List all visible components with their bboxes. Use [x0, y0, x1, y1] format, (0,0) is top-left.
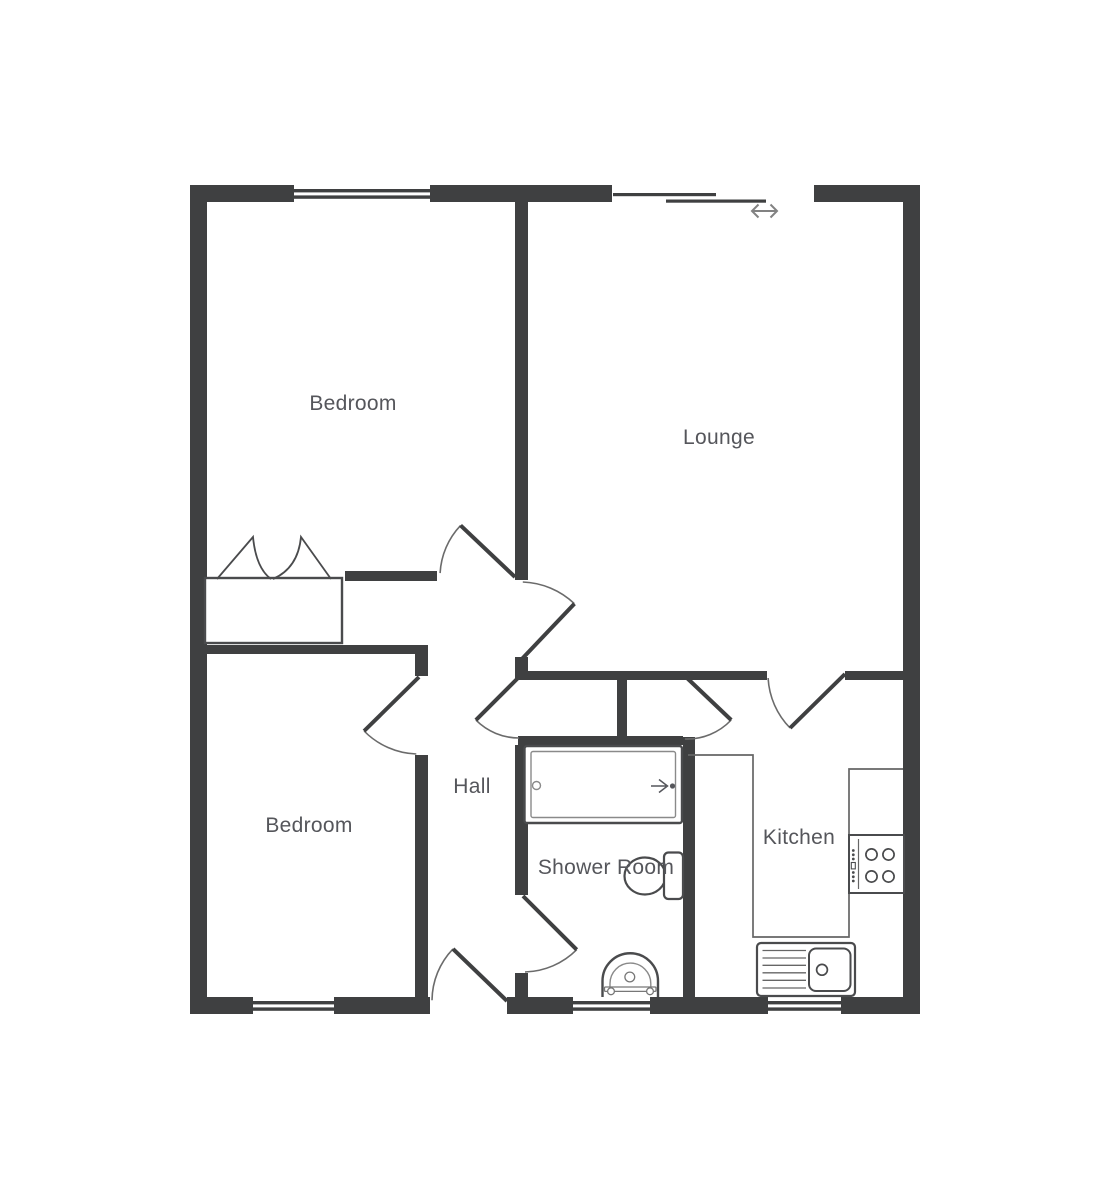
basin-drain: [625, 972, 635, 982]
sink-bowl: [809, 949, 851, 992]
wardrobe-door-right: [273, 537, 331, 579]
room-label-hall: Hall: [453, 775, 490, 799]
floorplan-drawing: [0, 0, 1110, 1202]
wall-segment: [845, 671, 903, 680]
bedroom1-door-leaf: [461, 525, 515, 577]
window-pane-line: [294, 189, 430, 192]
slide-direction-arrow-icon: [752, 205, 777, 218]
wall-segment: [515, 973, 528, 997]
wall-segment: [518, 671, 767, 680]
window-pane-line: [253, 1001, 334, 1004]
wall-segment: [507, 997, 573, 1014]
lounge-door-leaf: [520, 604, 574, 661]
window-pane-line: [294, 195, 430, 198]
kitchen-door-swing-arc: [768, 678, 790, 728]
hob-knob-dot: [852, 853, 855, 856]
wall-segment: [207, 645, 421, 654]
window: [294, 185, 430, 202]
wall-segment: [841, 997, 920, 1014]
kitchen-door-leaf: [790, 674, 845, 728]
hall-cupboard-door-swing-arc: [476, 720, 519, 738]
wall-segment: [190, 997, 253, 1014]
room-label-bedroom1: Bedroom: [309, 392, 396, 416]
front-door-leaf: [453, 949, 507, 1001]
wall-segment: [334, 997, 430, 1014]
window: [253, 997, 334, 1014]
window-pane-line: [253, 1007, 334, 1010]
lounge-door-swing-arc: [523, 582, 575, 604]
bathtub-arrow-dot: [670, 783, 675, 788]
wall-segment: [683, 737, 695, 997]
window-pane-line: [573, 1001, 650, 1004]
bedroom2-door-leaf: [364, 677, 419, 731]
window: [573, 997, 650, 1014]
wardrobe-box: [205, 578, 342, 643]
hob: [849, 835, 904, 893]
room-label-kitchen: Kitchen: [763, 826, 835, 850]
shower-door-leaf: [523, 896, 577, 950]
bedroom2-door-swing-arc: [364, 731, 416, 754]
wardrobe-door-left: [217, 537, 271, 579]
wall-segment: [518, 736, 683, 745]
hob-switch: [851, 863, 855, 869]
shower-door-swing-arc: [525, 950, 577, 972]
wall-segment: [430, 185, 612, 202]
sliding-door-panel: [613, 193, 716, 196]
hob-knob-dot: [852, 849, 855, 852]
room-label-shower: Shower Room: [538, 856, 674, 880]
kitchen-nook-door-swing-arc: [685, 720, 731, 739]
wall-segment: [415, 645, 428, 676]
wall-segment: [415, 755, 428, 997]
window-pane-line: [768, 1007, 841, 1010]
window-pane-line: [768, 1001, 841, 1004]
wall-segment: [903, 185, 920, 1014]
bathtub-outer: [525, 746, 683, 823]
hob-knob-dot: [852, 880, 855, 883]
hob-knob-dot: [852, 871, 855, 874]
front-door-swing-arc: [432, 949, 453, 1000]
hall-cupboard-door-leaf: [476, 677, 519, 720]
window: [768, 997, 841, 1014]
wall-segment: [345, 571, 437, 581]
sliding-door-panel: [666, 200, 766, 203]
hob-knob-dot: [852, 875, 855, 878]
basin-knob-left: [608, 988, 615, 995]
wall-segment: [650, 997, 768, 1014]
wall-segment: [515, 202, 528, 580]
floorplan-page: Bedroom Lounge Bedroom Hall Shower Room …: [0, 0, 1110, 1202]
bedroom1-door-swing-arc: [440, 525, 461, 573]
room-label-bedroom2: Bedroom: [265, 814, 352, 838]
hob-knob-dot: [852, 858, 855, 861]
window-pane-line: [573, 1007, 650, 1010]
wall-segment: [617, 680, 627, 736]
kitchen-nook-door-leaf: [687, 678, 731, 720]
room-label-lounge: Lounge: [683, 426, 755, 450]
basin-knob-right: [647, 988, 654, 995]
